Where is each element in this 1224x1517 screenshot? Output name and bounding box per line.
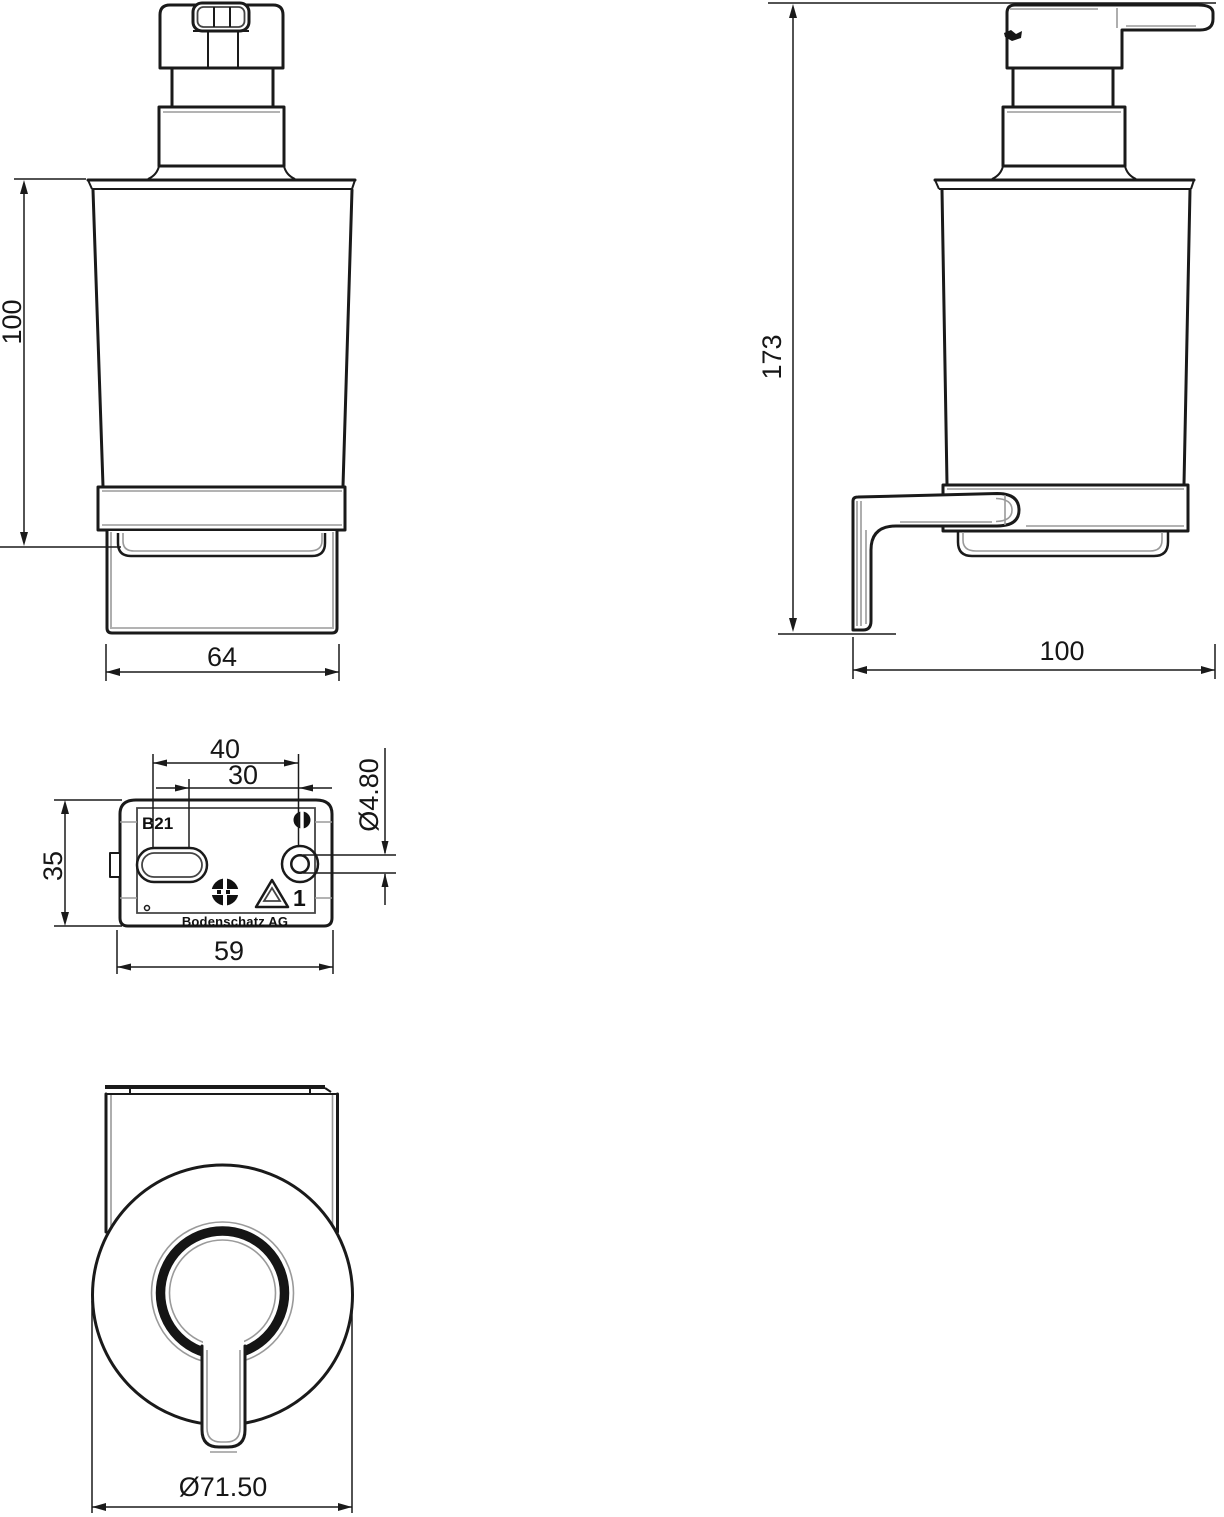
arrowhead-right <box>325 668 339 676</box>
dim-front-width: 64 <box>106 642 339 681</box>
arrowhead-down <box>789 618 797 632</box>
side-depth-label: 100 <box>1039 636 1084 666</box>
arrowhead-left <box>106 668 120 676</box>
bottle-sides <box>93 190 352 486</box>
arrowhead-right <box>319 964 333 971</box>
collar-flare <box>992 166 1136 179</box>
arrowhead-left <box>117 964 131 971</box>
front-view <box>88 3 355 633</box>
extension-lines <box>853 637 1215 679</box>
arrowhead-right <box>284 760 298 767</box>
technical-drawing-canvas: 100 64 173 <box>0 0 1224 1517</box>
glass-outline <box>107 531 337 633</box>
arrowhead-down <box>382 841 389 855</box>
wall-bracket-outline <box>853 494 1019 631</box>
pump-neck <box>172 68 273 107</box>
symbol-dot-left <box>217 890 221 894</box>
symbol-dot-right <box>226 890 230 894</box>
pump-cap-spout-outline <box>1007 5 1213 68</box>
plate-left-tab <box>110 853 120 877</box>
side-height-label: 173 <box>757 334 787 379</box>
arrowhead-right <box>299 785 313 792</box>
symbol-h-slot <box>211 889 239 895</box>
bottle-sides <box>942 190 1190 484</box>
glass-tray-outer <box>958 532 1168 556</box>
pump-neck <box>1013 68 1113 107</box>
arrowhead-left <box>853 666 867 674</box>
dim-side-height: 173 <box>757 3 1216 634</box>
glass-tray-inner <box>963 532 1162 551</box>
arrowhead-up <box>382 873 389 887</box>
arrowhead-up <box>20 180 28 194</box>
arrowhead-up <box>61 800 69 814</box>
arrowhead-down <box>61 912 69 926</box>
dim-side-depth: 100 <box>853 636 1215 679</box>
pump-collar <box>1003 107 1125 166</box>
bottom-diameter-label: Ø71.50 <box>179 1472 268 1502</box>
arrowhead-up <box>789 4 797 18</box>
arrowhead-down <box>20 532 28 546</box>
arrowhead-right <box>338 1503 352 1511</box>
collar-flare <box>148 166 295 179</box>
arrowhead-left <box>92 1503 106 1511</box>
technical-drawing-page: 100 64 173 <box>0 0 1224 1517</box>
front-width-label: 64 <box>207 642 237 672</box>
dim-plate-width: 59 <box>117 930 333 974</box>
plate-height-label: 35 <box>38 851 68 881</box>
hole-span-label: 30 <box>228 760 258 790</box>
arrowhead-right <box>1201 666 1215 674</box>
model-text: B21 <box>142 814 173 833</box>
extension-lines <box>768 3 1216 634</box>
pump-collar <box>159 107 284 166</box>
holder-band <box>98 487 345 530</box>
brand-text: Bodenschatz AG <box>182 914 288 929</box>
front-height-label: 100 <box>0 299 27 344</box>
recycle-code-text: 1 <box>293 885 306 911</box>
bottom-view <box>93 1087 353 1452</box>
hole-diameter-label: Ø4.80 <box>354 758 384 832</box>
side-view <box>853 5 1213 630</box>
plate-width-label: 59 <box>214 936 244 966</box>
arrowhead-left <box>153 760 167 767</box>
screw-slot <box>300 811 303 829</box>
arrowhead-left <box>175 785 189 792</box>
slot-mask <box>203 1336 244 1451</box>
